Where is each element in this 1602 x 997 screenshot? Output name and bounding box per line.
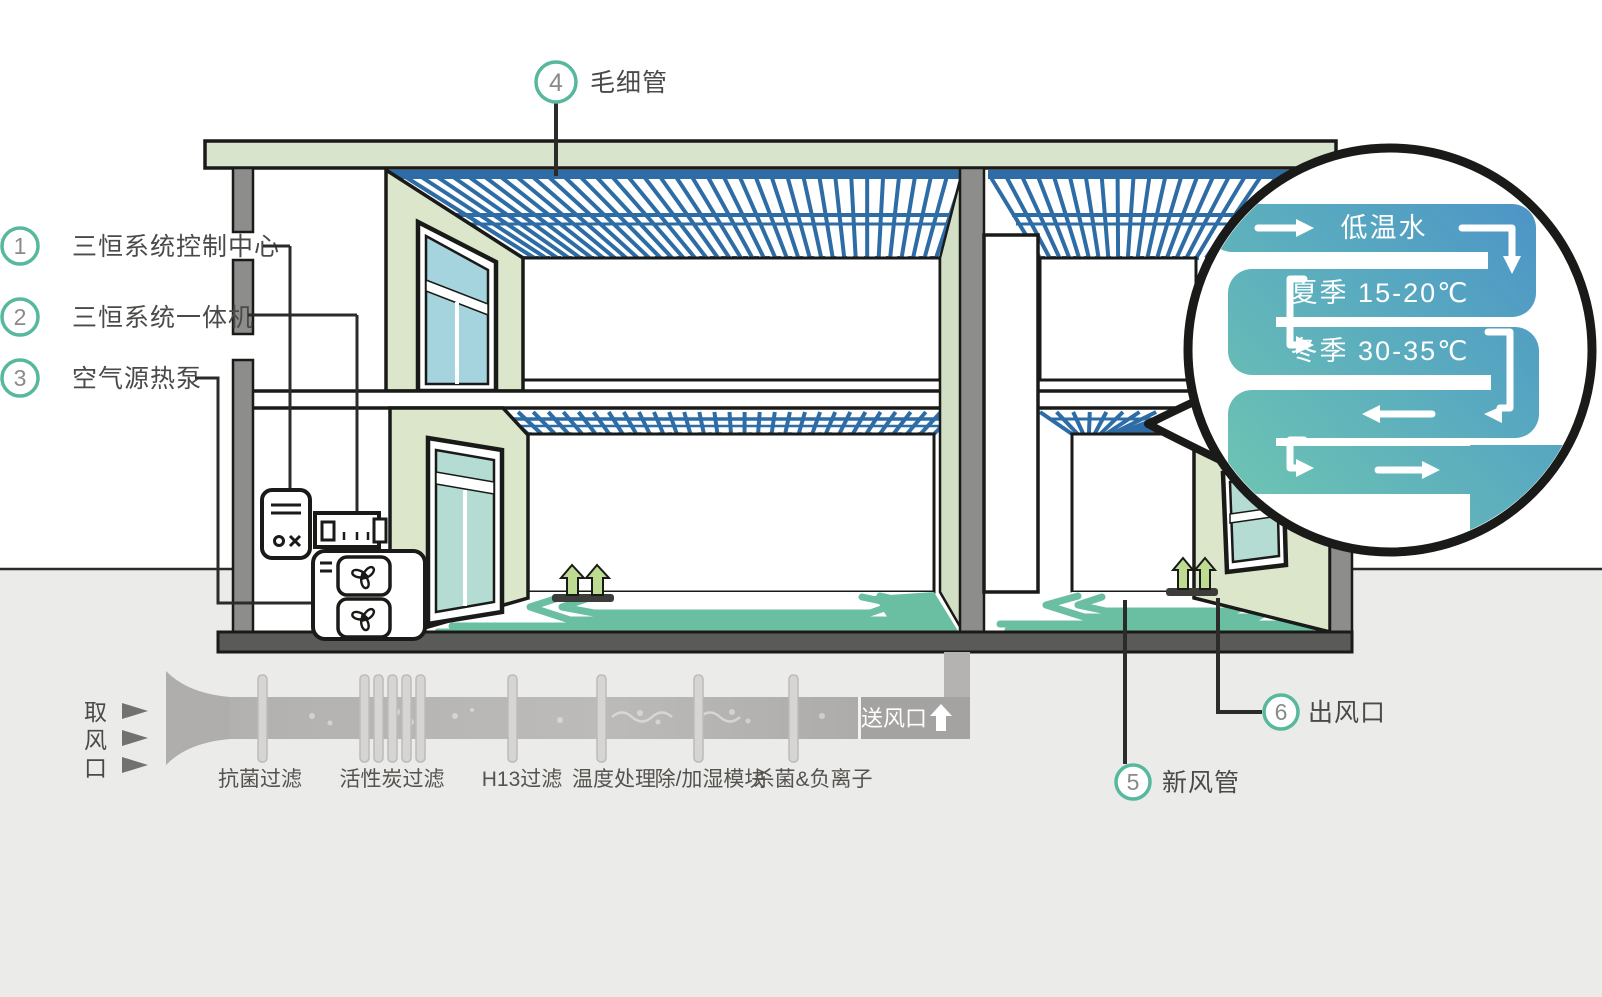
outlet-label: 送风口 (861, 706, 927, 731)
legend-label-2: 三恒系统一体机 (72, 304, 254, 332)
diagram-canvas: 1 三恒系统控制中心 2 三恒系统一体机 3 空气源热泵 4 毛细管 取 风 口 (0, 0, 1602, 997)
filter-plate-humidity (694, 675, 703, 762)
stage-label-3: 温度处理 (572, 768, 656, 791)
filter-plate-temperature (597, 675, 606, 762)
callout-label-6: 出风口 (1308, 699, 1386, 727)
legend-label-1: 三恒系统控制中心 (72, 233, 280, 261)
callout-num-6: 6 (1275, 699, 1288, 725)
heat-pump-unit (313, 551, 425, 639)
intake-char-1: 取 (84, 699, 108, 725)
stage-label-5: 杀菌&负离子 (753, 768, 872, 791)
lower-left-window (428, 438, 502, 624)
legend-num-3: 3 (14, 365, 27, 391)
callout-num-4: 4 (549, 69, 563, 97)
riser-duct (944, 652, 970, 702)
upper-left-back-wall (523, 258, 940, 380)
bubble-line1: 低温水 (1341, 213, 1428, 243)
intake-char-2: 风 (84, 727, 108, 753)
control-center-unit (262, 490, 310, 558)
filter-plate-h13 (508, 675, 517, 762)
callout-num-5: 5 (1127, 769, 1140, 795)
intake-char-3: 口 (84, 755, 108, 781)
legend-label-3: 空气源热泵 (72, 365, 202, 393)
all-in-one-unit (315, 513, 386, 547)
lower-left-back-wall (528, 434, 934, 592)
mid-floor-slab (253, 391, 1330, 408)
stage-label-4: 除/加湿模块 (655, 768, 766, 791)
filter-plate-antibacterial (258, 675, 267, 762)
partition-side-face (940, 172, 962, 630)
bubble-line2: 夏季 15-20℃ (1291, 278, 1470, 308)
stage-label-1: 活性炭过滤 (340, 768, 445, 791)
callout-label-5: 新风管 (1162, 769, 1240, 797)
upper-right-back-wall (1040, 258, 1196, 380)
legend-num-2: 2 (14, 304, 27, 330)
duct-shaft-column (984, 235, 1038, 592)
legend-num-1: 1 (14, 233, 27, 259)
stage-label-0: 抗菌过滤 (218, 768, 302, 791)
filter-plate-sterilize (789, 675, 798, 762)
roof-slab (205, 141, 1336, 168)
callout-label-4: 毛细管 (590, 69, 668, 97)
stage-label-2: H13过滤 (482, 768, 563, 791)
bubble-line3: 冬季 30-35℃ (1291, 336, 1470, 366)
hvac-system-diagram: 1 三恒系统控制中心 2 三恒系统一体机 3 空气源热泵 4 毛细管 取 风 口 (0, 0, 1602, 997)
partition-wall (960, 168, 984, 632)
